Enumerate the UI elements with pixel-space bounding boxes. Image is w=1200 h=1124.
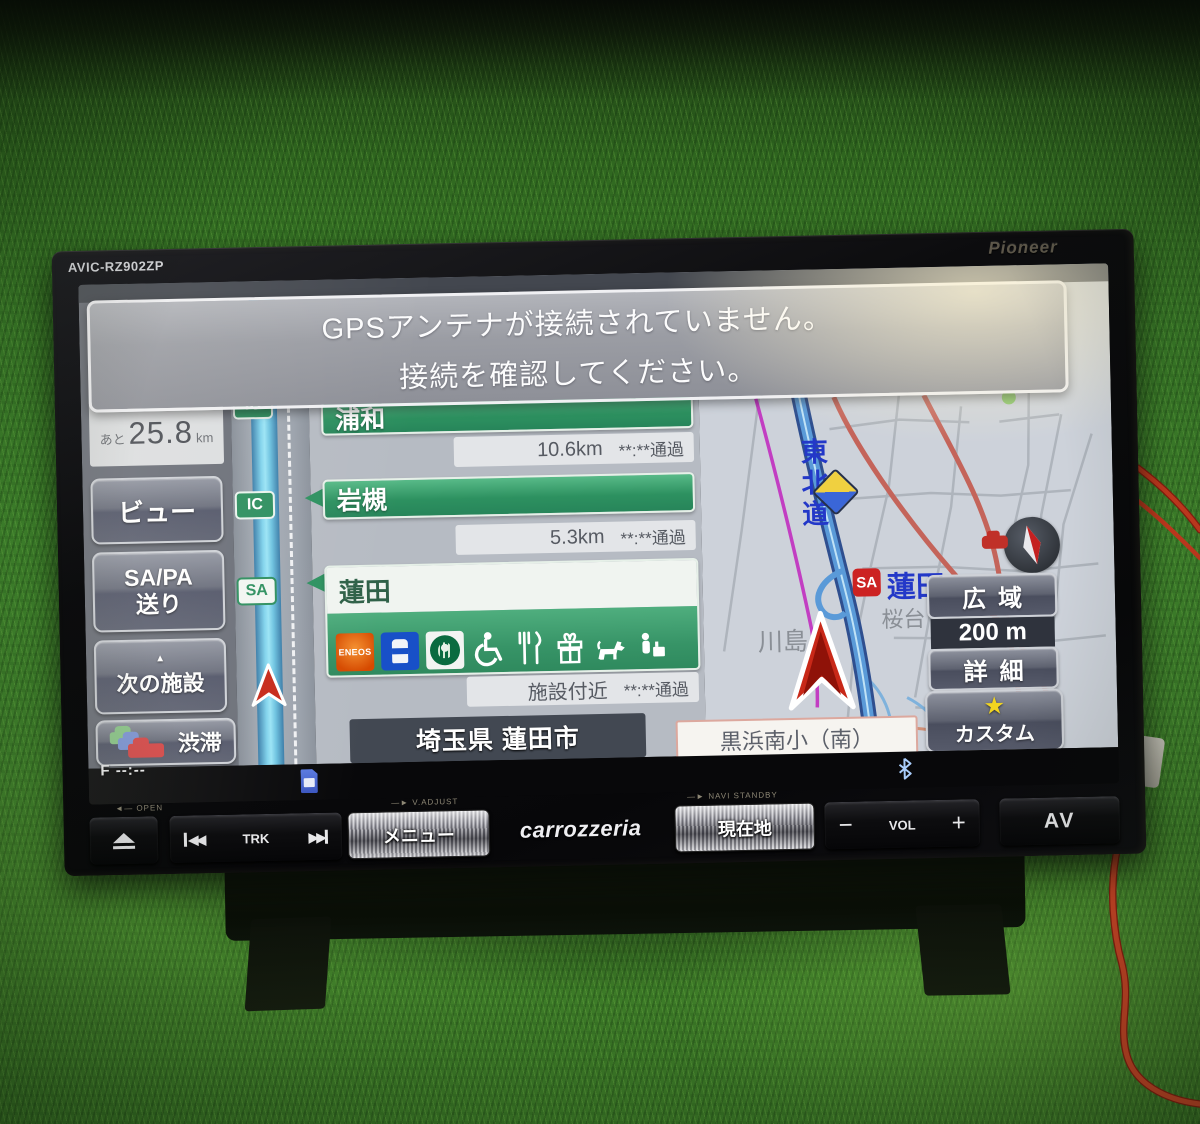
exit-info-urawa: 10.6km **:**通過 [454, 432, 695, 467]
scroll-up-caret-icon: ▲ [155, 654, 165, 664]
eject-button[interactable] [89, 816, 158, 864]
facility-rest-area-icon [635, 627, 670, 666]
vehicle-position-icon [250, 663, 287, 710]
vol-down-button[interactable]: − [838, 812, 853, 840]
trk-label: TRK [242, 830, 269, 846]
traffic-cars-icon [110, 725, 173, 760]
volume-strip: − VOL + [824, 799, 980, 849]
current-location-button[interactable]: 現在地 [674, 803, 815, 853]
ic-badge-iwatsuki: IC [235, 491, 276, 520]
gps-warning-line1: GPSアンテナが接続されていません。 [321, 295, 833, 348]
next-track-button[interactable]: ▶▶ [308, 828, 328, 845]
menu-button[interactable]: メニュー [347, 809, 490, 859]
prev-track-button[interactable]: ◀◀ [184, 831, 204, 848]
current-position-arrow [785, 609, 857, 722]
sapa-skip-button[interactable]: SA/PA 送り [92, 550, 226, 633]
zoom-in-button[interactable]: 詳細 [928, 646, 1059, 691]
facility-wheelchair-icon [471, 630, 506, 669]
traffic-car-icon [982, 535, 1008, 549]
nav-head-unit: AVIC-RZ902ZP Pioneer あと 25.8 km ビュー SA/P… [52, 229, 1147, 877]
photo-scene: AVIC-RZ902ZP Pioneer あと 25.8 km ビュー SA/P… [0, 0, 1200, 1124]
gps-warning-line2: 接続を確認してください。 [399, 347, 758, 396]
navi-standby-label: —► NAVI STANDBY [687, 790, 778, 801]
sa-badge-hasuda: SA [236, 577, 277, 606]
vics-time: F --:-- [100, 762, 146, 780]
custom-button[interactable]: ★ カスタム [925, 688, 1064, 753]
next-facility-button[interactable]: ▲ 次の施設 [94, 638, 228, 715]
map-sa-badge: SA [852, 568, 881, 597]
exit-row-iwatsuki[interactable]: 岩槻 [322, 472, 695, 520]
star-icon: ★ [983, 695, 1005, 717]
open-label: ◄— OPEN [115, 803, 163, 813]
v-adjust-label: —► V.ADJUST [391, 797, 458, 807]
place-label-sakuradai: 桜台 [881, 601, 926, 634]
model-label: AVIC-RZ902ZP [68, 258, 164, 275]
facility-restaurant-icon [512, 629, 547, 668]
facility-eneos-logo: ENEOS [336, 633, 375, 672]
facility-dog-run-icon [594, 627, 629, 666]
facility-lawson-logo [381, 632, 420, 671]
nav-touchscreen[interactable]: あと 25.8 km ビュー SA/PA 送り ▲ 次の施設 渋滞 F -- [78, 263, 1119, 804]
pioneer-logo: Pioneer [988, 237, 1058, 258]
eject-icon [113, 833, 135, 843]
track-button-strip: ◀◀ TRK ▶▶ [169, 812, 342, 863]
facility-starbucks-logo [426, 631, 465, 670]
exit-info-iwatsuki: 5.3km **:**通過 [455, 520, 696, 555]
bluetooth-icon [896, 756, 912, 780]
view-button[interactable]: ビュー [90, 476, 223, 545]
exit-info-hasuda: 施設付近 **:**通過 [467, 672, 700, 707]
vol-label: VOL [889, 817, 916, 833]
map-scale: 200 m [930, 616, 1055, 649]
zoom-out-button[interactable]: 広域 [927, 572, 1058, 619]
exit-pointer [306, 574, 324, 592]
facility-gift-shop-icon [553, 628, 588, 667]
current-address-bar: 埼玉県 蓮田市 [349, 713, 646, 763]
exit-pointer [305, 489, 323, 507]
sd-card-icon [300, 769, 317, 793]
gps-warning-dialog: GPSアンテナが接続されていません。 接続を確認してください。 [87, 280, 1069, 412]
exit-row-hasuda-sa[interactable]: 蓮田 ENEOS [324, 558, 700, 678]
compass-icon [1003, 516, 1060, 573]
vol-up-button[interactable]: + [951, 809, 966, 837]
av-button[interactable]: AV [999, 796, 1120, 846]
traffic-button[interactable]: 渋滞 [95, 718, 236, 767]
carrozzeria-logo: carrozzeria [520, 815, 651, 844]
